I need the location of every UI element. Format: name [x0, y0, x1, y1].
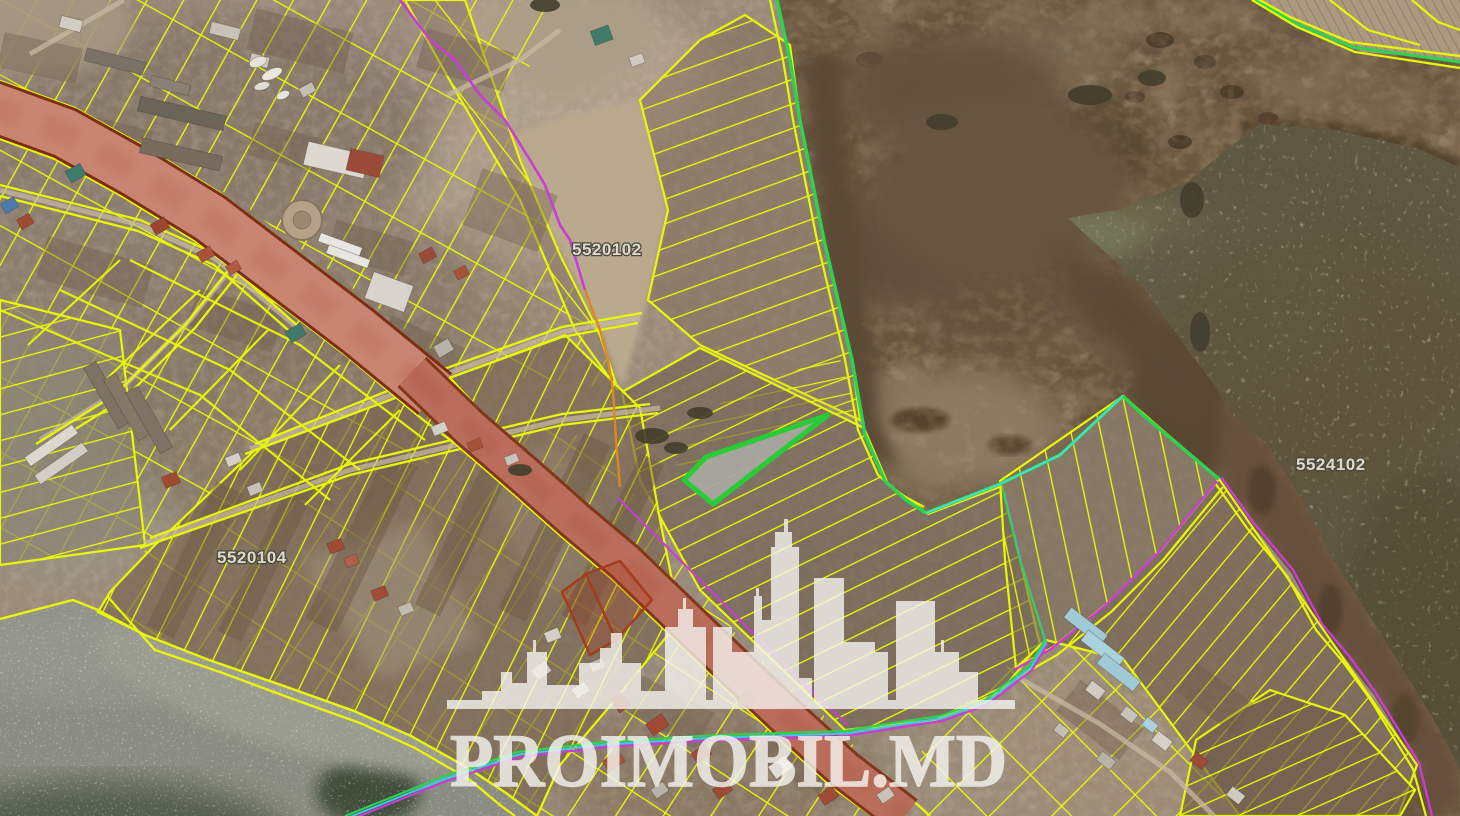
- svg-text:5524102: 5524102: [1296, 455, 1366, 474]
- svg-text:5520104: 5520104: [217, 548, 287, 567]
- svg-text:PROIMOBIL.MD: PROIMOBIL.MD: [450, 719, 1007, 802]
- svg-text:5520102: 5520102: [572, 240, 642, 259]
